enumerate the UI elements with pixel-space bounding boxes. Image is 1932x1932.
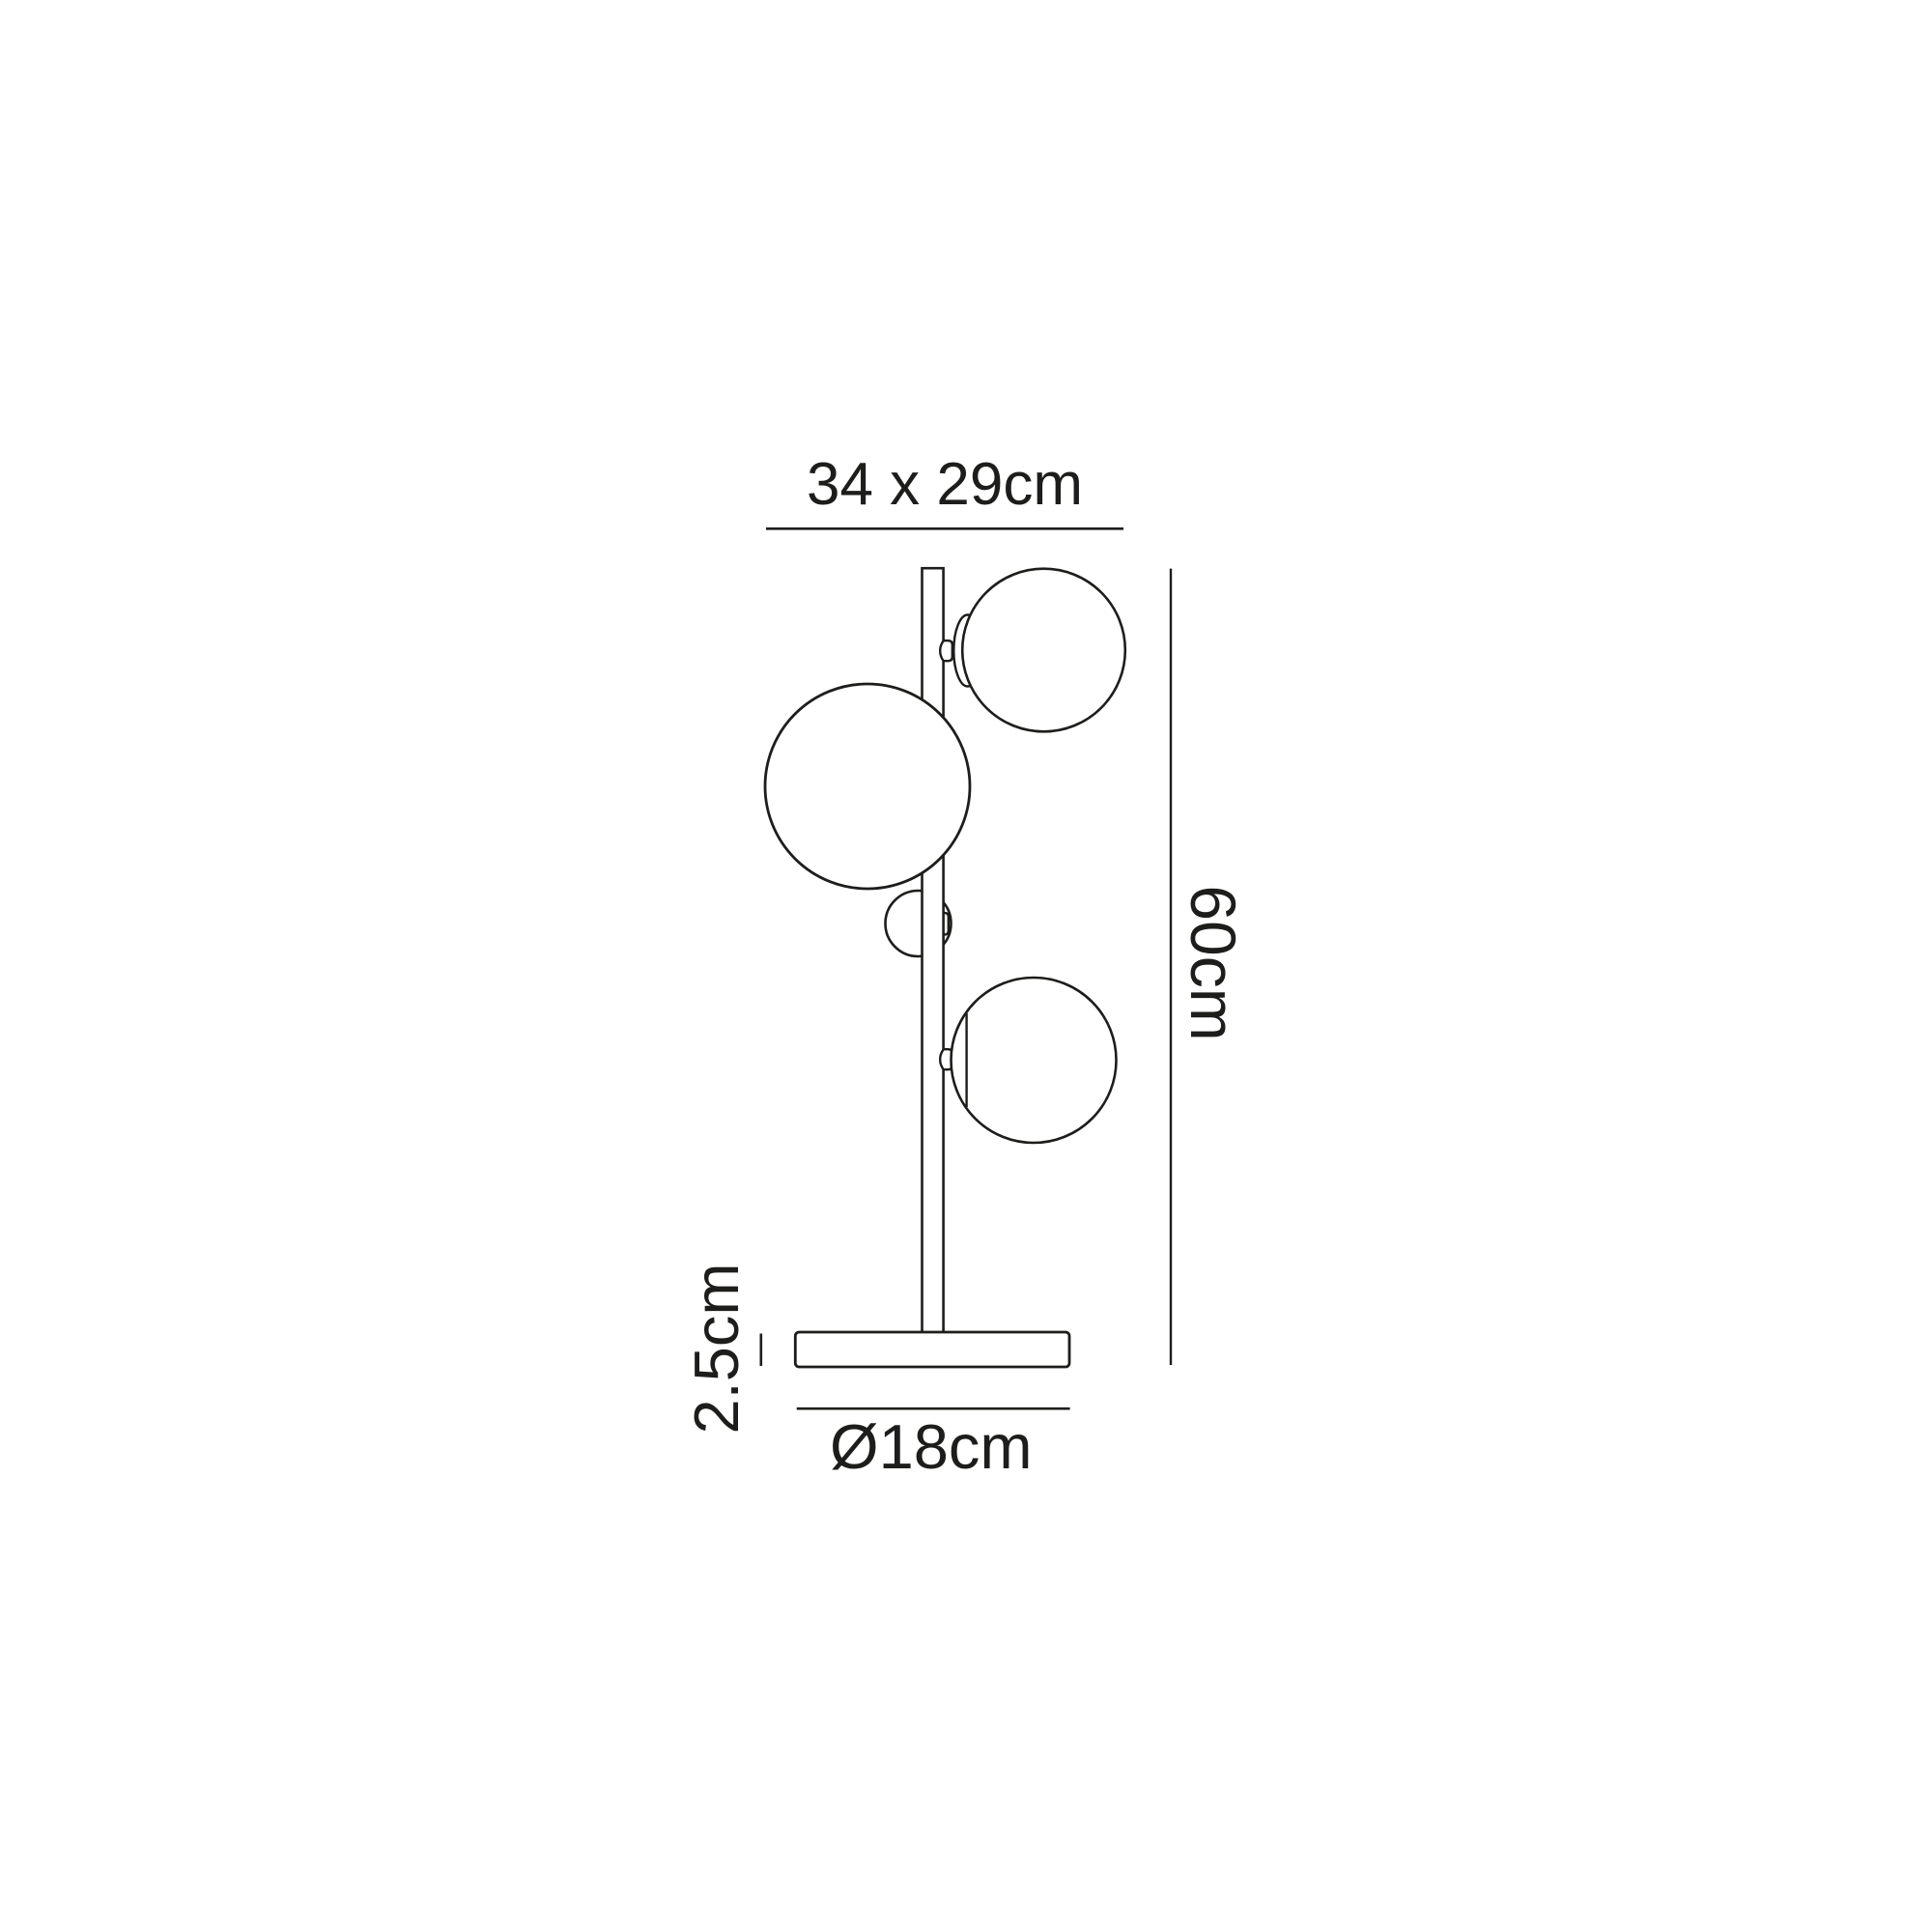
svg-text:Ø18cm: Ø18cm (830, 1411, 1033, 1482)
svg-text:60cm: 60cm (1178, 885, 1249, 1040)
svg-text:2.5cm: 2.5cm (681, 1263, 752, 1434)
svg-text:34 x 29cm: 34 x 29cm (807, 451, 1083, 518)
